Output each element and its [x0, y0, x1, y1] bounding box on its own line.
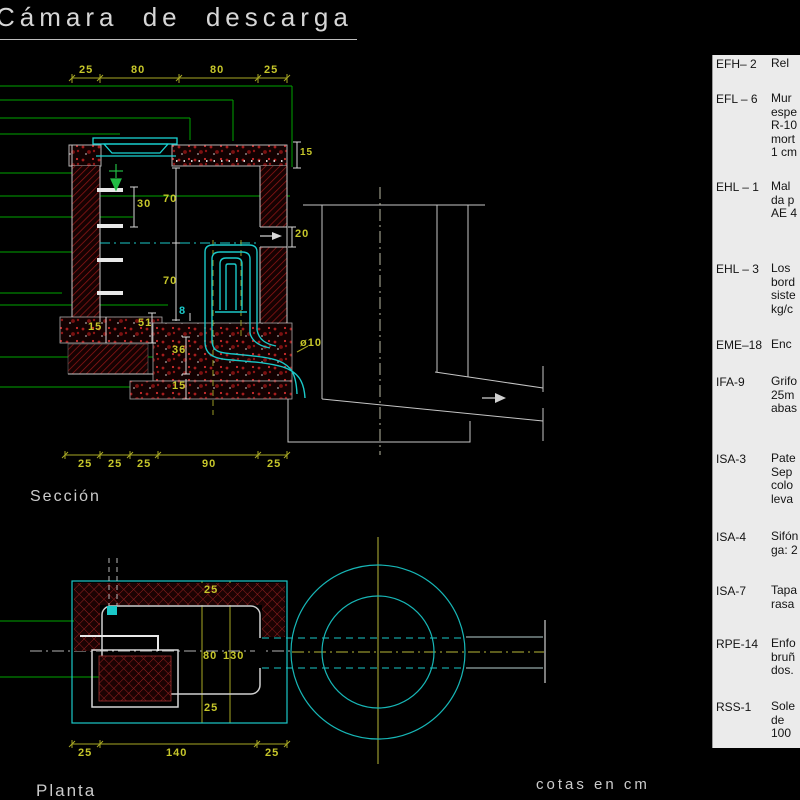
legend-code: EHL – 3 — [716, 262, 771, 316]
legend-desc: Sole de 100 — [771, 700, 795, 741]
title-underline — [0, 39, 357, 40]
dim-label: 25 — [78, 459, 92, 470]
dim-label: 25 — [108, 459, 122, 470]
legend-code: RPE-14 — [716, 637, 771, 678]
legend-desc: Rel — [771, 57, 789, 71]
dim-label: 80 — [203, 651, 217, 662]
legend-item: RPE-14 Enfo bruñ dos. — [716, 637, 800, 678]
legend-code: RSS-1 — [716, 700, 771, 741]
drawing-title: Cámara de descarga — [0, 2, 353, 33]
ladder-rungs — [97, 188, 123, 295]
dim-label: 15 — [172, 381, 186, 392]
tap-symbol-icon — [109, 164, 123, 190]
flow-arrow-icon — [482, 393, 506, 403]
dim-label: 25 — [78, 748, 92, 759]
legend-code: EHL – 1 — [716, 180, 771, 221]
legend-item: ISA-4 Sifón ga: 2 — [716, 530, 800, 557]
dim-label: 70 — [163, 276, 177, 287]
cad-viewport: Cámara de descarga 25 80 80 25 15 30 70 … — [0, 0, 800, 800]
legend-item: IFA-9 Grifo 25m abas — [716, 375, 800, 416]
dim-label: 25 — [79, 65, 93, 76]
dim-label: 15 — [300, 148, 313, 158]
dim-label: 70 — [163, 194, 177, 205]
legend-item: EHL – 3 Los bord siste kg/c — [716, 262, 800, 316]
manhole-cover — [93, 138, 177, 156]
dim-label: 30 — [137, 199, 151, 210]
plan-view-label: Planta — [36, 781, 96, 800]
legend-code: EME–18 — [716, 338, 771, 352]
legend-desc: Enc — [771, 338, 792, 352]
dim-label: 8 — [179, 306, 186, 317]
dim-label: 15 — [88, 322, 102, 333]
dim-label: 25 — [265, 748, 279, 759]
legend-desc: Pate Sep colo leva — [771, 452, 796, 506]
legend-item: EME–18 Enc — [716, 338, 800, 352]
dim-label: 25 — [204, 585, 218, 596]
legend-code: EFH– 2 — [716, 57, 771, 71]
legend-item: ISA-3 Pate Sep colo leva — [716, 452, 800, 506]
legend-code: ISA-3 — [716, 452, 771, 506]
dim-label: 130 — [223, 651, 244, 662]
dim-label: 140 — [166, 748, 187, 759]
inlet-arrow-icon — [260, 232, 282, 240]
dim-label: 36 — [172, 345, 186, 356]
dim-label: 25 — [267, 459, 281, 470]
legend-code: IFA-9 — [716, 375, 771, 416]
legend-desc: Mal da p AE 4 — [771, 180, 797, 221]
dim-label: 51 — [138, 318, 152, 329]
dim-label: 25 — [204, 703, 218, 714]
dim-label: 80 — [131, 65, 145, 76]
legend-desc: Enfo bruñ dos. — [771, 637, 796, 678]
legend-desc: Sifón ga: 2 — [771, 530, 798, 557]
legend-item: ISA-7 Tapa rasa — [716, 584, 800, 611]
dim-label: 20 — [295, 229, 309, 240]
legend-desc: Mur espe R-10 mort 1 cm — [771, 92, 797, 160]
dim-label: 80 — [210, 65, 224, 76]
legend-panel: EFH– 2 Rel EFL – 6 Mur espe R-10 mort 1 … — [712, 55, 800, 748]
cad-linework — [0, 0, 800, 800]
pipe-diameter-label: ø10 — [300, 338, 322, 349]
plan-view — [72, 558, 545, 739]
legend-code: ISA-7 — [716, 584, 771, 611]
section-view-label: Sección — [30, 488, 101, 506]
legend-item: EFL – 6 Mur espe R-10 mort 1 cm — [716, 92, 800, 160]
legend-item: RSS-1 Sole de 100 — [716, 700, 800, 741]
legend-desc: Los bord siste kg/c — [771, 262, 796, 316]
legend-item: EHL – 1 Mal da p AE 4 — [716, 180, 800, 221]
legend-code: ISA-4 — [716, 530, 771, 557]
dim-label: 25 — [264, 65, 278, 76]
legend-desc: Tapa rasa — [771, 584, 797, 611]
dim-label: 25 — [137, 459, 151, 470]
legend-item: EFH– 2 Rel — [716, 57, 800, 71]
legend-desc: Grifo 25m abas — [771, 375, 797, 416]
dim-label: 90 — [202, 459, 216, 470]
units-note: cotas en cm — [536, 776, 650, 793]
legend-code: EFL – 6 — [716, 92, 771, 160]
